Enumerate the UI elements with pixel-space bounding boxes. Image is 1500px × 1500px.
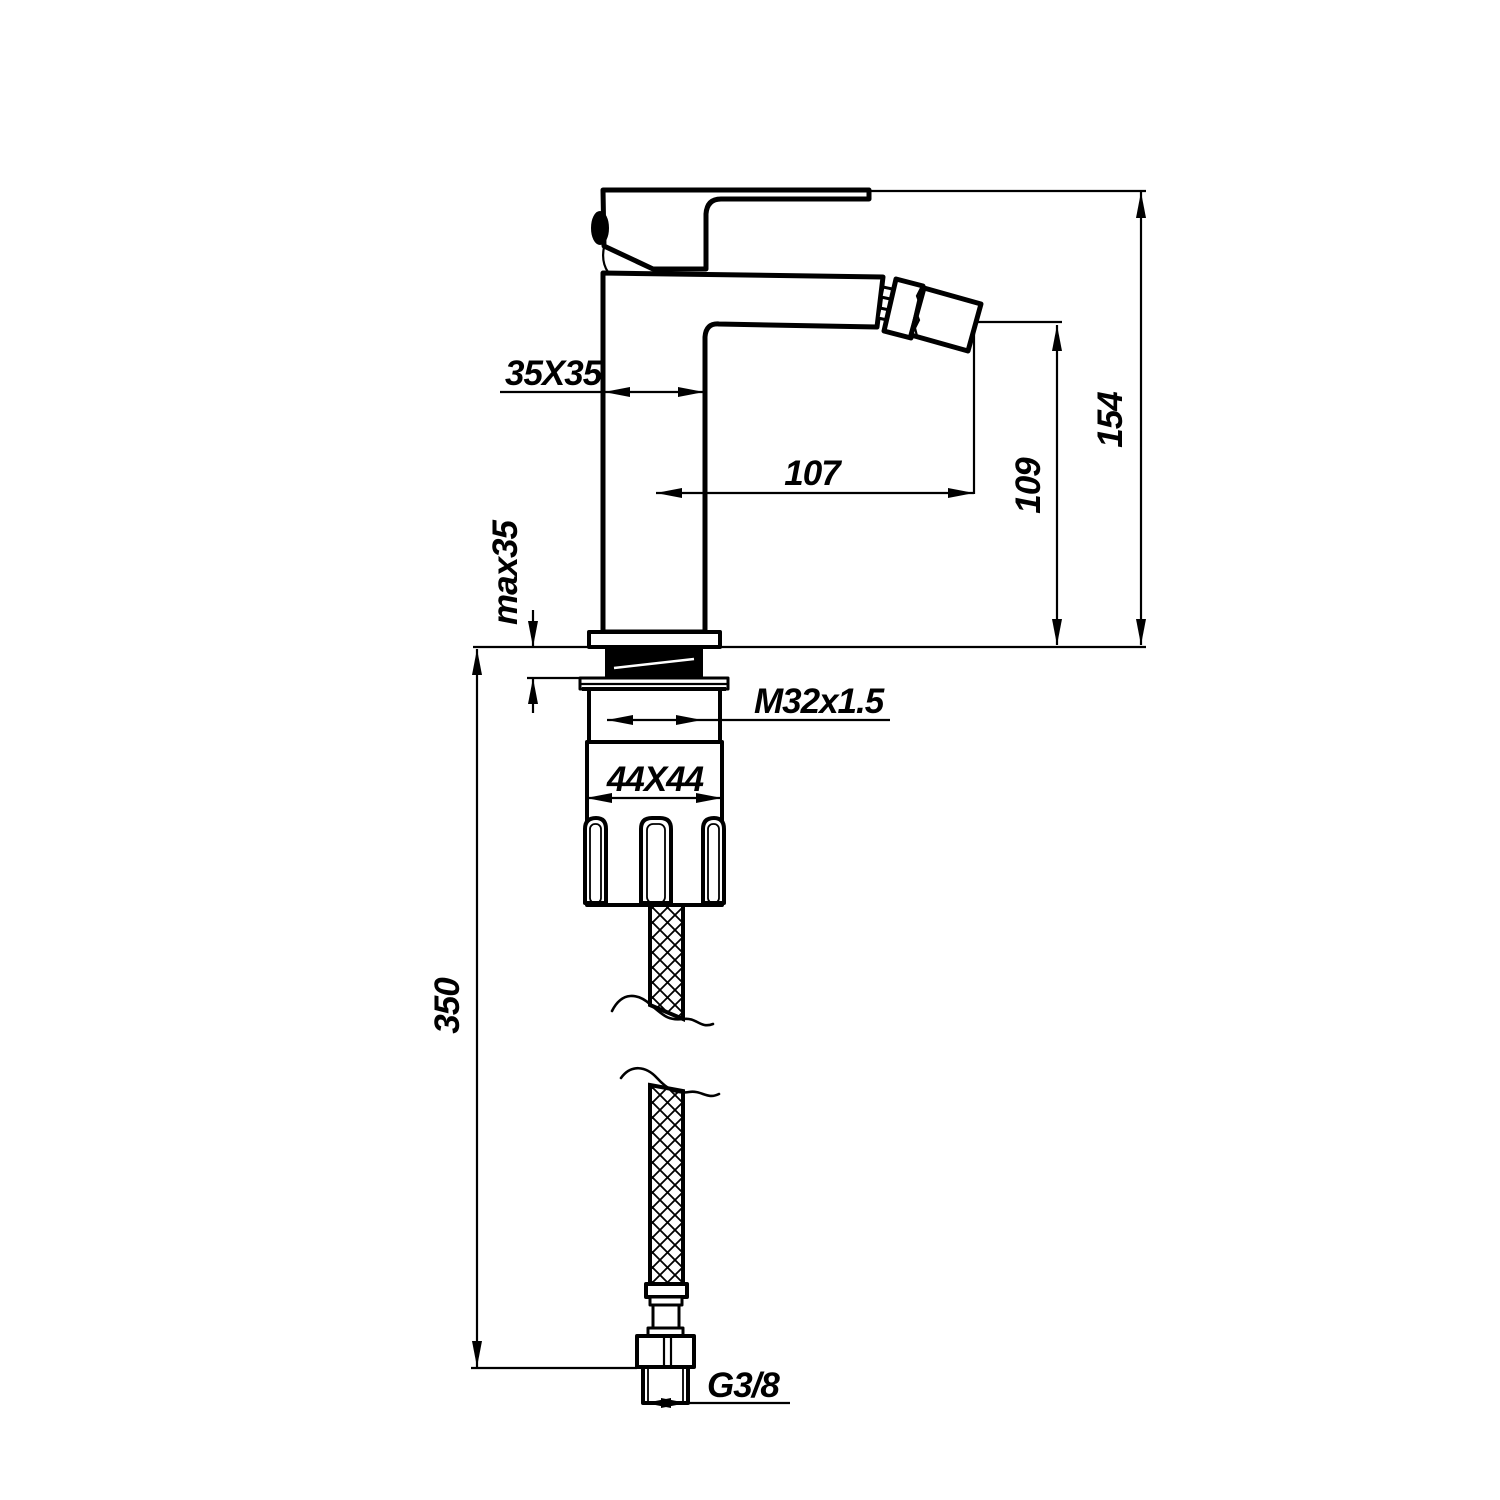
dim-label-max-mount-thickness: max35 <box>486 519 525 625</box>
arrowhead <box>1052 325 1062 351</box>
arrowhead <box>1052 619 1062 645</box>
grip-slot-right <box>703 818 724 903</box>
arrowhead <box>528 678 538 704</box>
arrowhead <box>1136 619 1146 645</box>
dim-label-spout-reach: 107 <box>784 454 842 493</box>
technical-drawing-canvas: 35X35 107 109 154 max35 M32x1.5 44X44 35… <box>0 0 1500 1500</box>
lever-front-edge-line <box>603 247 608 272</box>
base-flange <box>589 632 720 647</box>
dim-label-shank-thread: M32x1.5 <box>754 682 885 721</box>
connector-tube <box>653 1305 679 1328</box>
supply-hose-upper <box>650 905 683 1019</box>
arrowhead <box>472 649 482 675</box>
connector-thread-tail <box>643 1367 688 1403</box>
dim-label-hose-thread: G3/8 <box>707 1366 780 1405</box>
mounting-locknut <box>589 689 720 742</box>
faucet-dimension-drawing: 35X35 107 109 154 max35 M32x1.5 44X44 35… <box>0 0 1500 1500</box>
faucet-body-and-spout <box>603 273 883 632</box>
hex-connection-nut <box>637 1336 694 1367</box>
dim-label-body-section: 35X35 <box>505 354 603 393</box>
dim-label-spout-height: 109 <box>1009 457 1048 514</box>
faucet-lever-handle <box>603 190 869 269</box>
dim-label-overall-height: 154 <box>1091 392 1130 448</box>
dim-label-hose-length: 350 <box>428 977 467 1034</box>
grip-slot-left <box>585 818 606 903</box>
lever-pivot-detail <box>592 212 608 244</box>
arrowhead <box>472 1341 482 1367</box>
grip-slot-middle <box>641 818 671 903</box>
dim-label-base-nut-section: 44X44 <box>606 760 704 799</box>
arrowhead <box>948 488 974 498</box>
aerator-nozzle <box>911 288 981 351</box>
hose-ferrule <box>646 1284 687 1297</box>
supply-hose-lower <box>650 1085 683 1284</box>
arrowhead <box>528 621 538 647</box>
arrowhead <box>1136 192 1146 218</box>
